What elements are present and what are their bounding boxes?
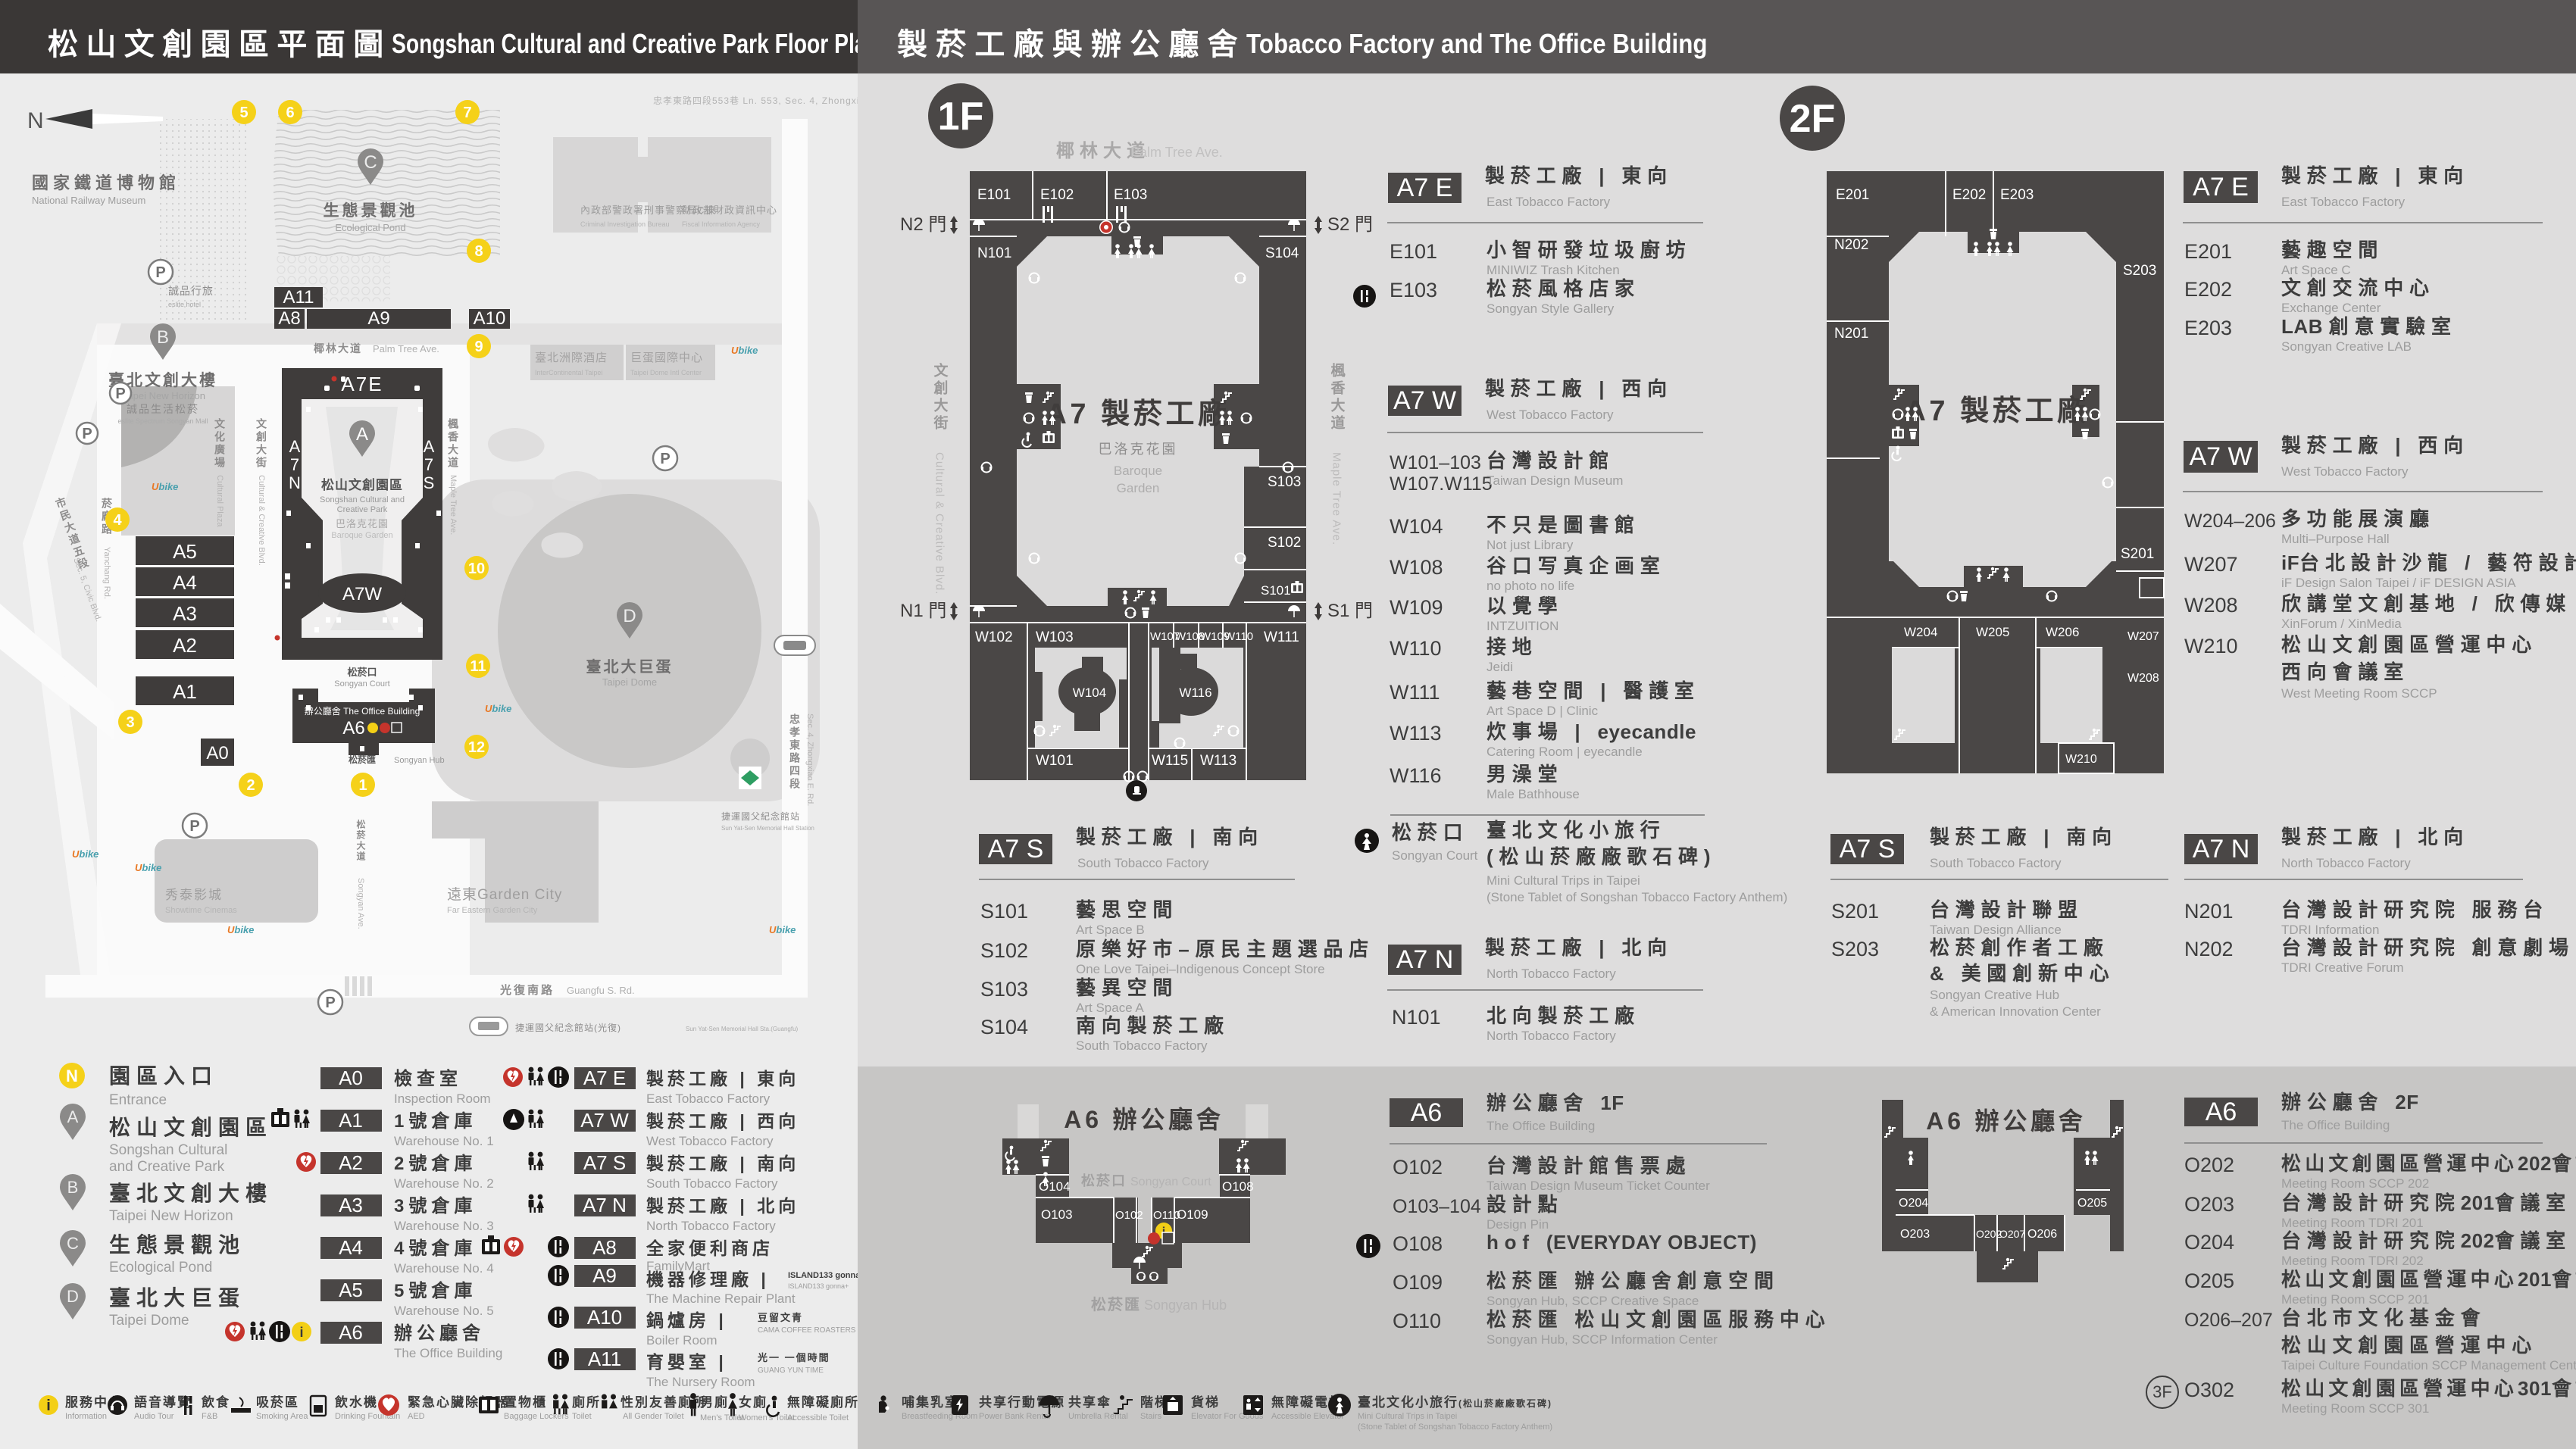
svg-text:Warehouse No. 5: Warehouse No. 5 <box>394 1304 494 1318</box>
svg-text:女廁: 女廁 <box>739 1394 767 1410</box>
svg-text:E103: E103 <box>1114 187 1147 203</box>
svg-text:A: A <box>67 1107 79 1126</box>
svg-text:A10: A10 <box>587 1306 622 1329</box>
svg-text:W210: W210 <box>2065 753 2097 766</box>
svg-text:A6 辦公廳舍: A6 辦公廳舍 <box>1064 1106 1224 1133</box>
svg-text:5: 5 <box>239 105 248 121</box>
svg-text:O205: O205 <box>2077 1197 2107 1210</box>
svg-text:C: C <box>67 1234 79 1253</box>
svg-text:飲食: 飲食 <box>201 1394 230 1410</box>
svg-text:Sun Yat-Sen Memorial Hall Sta.: Sun Yat-Sen Memorial Hall Sta.(Guangfu) <box>686 1026 799 1032</box>
svg-text:eslite Spectrum Songyan Mall: eslite Spectrum Songyan Mall <box>117 417 208 425</box>
svg-text:財政部財政資訊中心: 財政部財政資訊中心 <box>682 205 777 216</box>
svg-text:文化廣場: 文化廣場 <box>214 417 226 470</box>
svg-text:臺北大巨蛋: 臺北大巨蛋 <box>109 1286 245 1310</box>
svg-text:Ubike: Ubike <box>769 924 796 935</box>
svg-text:P: P <box>660 451 670 467</box>
svg-text:A1: A1 <box>339 1109 363 1132</box>
svg-text:A7E: A7E <box>341 373 383 395</box>
svg-text:All Gender Toilet: All Gender Toilet <box>623 1412 684 1421</box>
svg-text:Power Bank Rental: Power Bank Rental <box>979 1412 1050 1421</box>
svg-text:生態景觀池: 生態景觀池 <box>324 201 418 220</box>
svg-text:S1 門: S1 門 <box>1327 601 1373 621</box>
svg-text:E201: E201 <box>1836 187 1869 203</box>
svg-text:7: 7 <box>463 105 471 121</box>
svg-text:Ubike: Ubike <box>485 703 511 714</box>
svg-text:Showtime Cinemas: Showtime Cinemas <box>165 906 237 915</box>
svg-text:The Office Building: The Office Building <box>394 1346 502 1360</box>
svg-text:A: A <box>424 437 435 456</box>
svg-text:Warehouse No. 1: Warehouse No. 1 <box>394 1134 494 1148</box>
svg-text:A4: A4 <box>173 571 197 594</box>
svg-text:A7 E: A7 E <box>583 1066 626 1089</box>
svg-text:A6 辦公廳舍: A6 辦公廳舍 <box>1926 1107 2086 1135</box>
svg-text:W111: W111 <box>1264 629 1299 645</box>
svg-text:W101: W101 <box>1036 753 1074 769</box>
svg-text:W116: W116 <box>1179 685 1211 700</box>
svg-text:Taipei New Horizon: Taipei New Horizon <box>120 390 205 401</box>
svg-text:3號倉庫: 3號倉庫 <box>394 1195 477 1216</box>
svg-text:N1 門: N1 門 <box>900 601 946 621</box>
svg-text:Ubike: Ubike <box>227 924 254 935</box>
svg-text:Taipei New Horizon: Taipei New Horizon <box>109 1208 233 1224</box>
svg-text:Cultural & Creative Blvd.: Cultural & Creative Blvd. <box>257 475 266 566</box>
svg-text:Songyan Hub: Songyan Hub <box>1144 1298 1227 1313</box>
svg-text:N201: N201 <box>1834 326 1868 342</box>
svg-text:光一 一個時間: 光一 一個時間 <box>757 1352 830 1363</box>
svg-text:P: P <box>325 995 335 1011</box>
svg-text:Fiscal Information Agency: Fiscal Information Agency <box>682 220 761 228</box>
svg-text:Umbrella Rental: Umbrella Rental <box>1068 1412 1128 1421</box>
svg-text:D: D <box>623 606 636 626</box>
svg-text:園區入口: 園區入口 <box>109 1064 218 1088</box>
svg-text:Sun Yat-Sen Memorial Hall Stat: Sun Yat-Sen Memorial Hall Station <box>721 825 814 832</box>
svg-text:哺集乳室: 哺集乳室 <box>902 1394 959 1410</box>
svg-text:Palm Tree Ave.: Palm Tree Ave. <box>373 343 439 354</box>
svg-text:E202: E202 <box>1952 187 1986 203</box>
svg-text:N: N <box>27 108 44 133</box>
svg-text:ISLAND133 gonna+: ISLAND133 gonna+ <box>788 1282 849 1290</box>
svg-text:Songyan Court: Songyan Court <box>334 679 389 689</box>
svg-text:O202: O202 <box>1976 1228 2002 1240</box>
svg-text:Smoking Area: Smoking Area <box>256 1412 308 1421</box>
svg-text:4號倉庫: 4號倉庫 <box>394 1238 477 1259</box>
svg-text:E203: E203 <box>2000 187 2034 203</box>
svg-text:i: i <box>299 1325 303 1340</box>
svg-text:Warehouse No. 3: Warehouse No. 3 <box>394 1219 494 1233</box>
svg-text:誠品生活松菸: 誠品生活松菸 <box>127 403 199 415</box>
svg-text:W104: W104 <box>1073 685 1106 700</box>
svg-text:S203: S203 <box>2123 263 2156 279</box>
svg-text:7: 7 <box>290 455 299 474</box>
svg-text:遠東Garden City: 遠東Garden City <box>447 886 562 903</box>
svg-text:Ubike: Ubike <box>152 481 178 492</box>
svg-text:Baroque: Baroque <box>1114 464 1162 478</box>
svg-text:6: 6 <box>286 105 294 121</box>
svg-text:2F: 2F <box>1790 97 1836 141</box>
svg-text:松菸匯: 松菸匯 <box>1091 1295 1141 1313</box>
svg-text:A2: A2 <box>339 1151 363 1174</box>
svg-text:共享傘: 共享傘 <box>1068 1394 1111 1410</box>
svg-text:O108: O108 <box>1222 1179 1254 1194</box>
svg-text:Cultural Plaza: Cultural Plaza <box>215 475 224 527</box>
svg-text:(Stone Tablet of Songshan Toba: (Stone Tablet of Songshan Tobacco Factor… <box>1358 1422 1552 1432</box>
svg-text:N202: N202 <box>1834 237 1868 253</box>
svg-text:South Tobacco Factory: South Tobacco Factory <box>646 1176 778 1191</box>
svg-text:文創大街: 文創大街 <box>932 362 949 433</box>
svg-text:8: 8 <box>474 243 483 260</box>
svg-text:Information: Information <box>65 1412 107 1421</box>
svg-text:臺北文創大樓: 臺北文創大樓 <box>109 1181 273 1205</box>
svg-text:全家便利商店: 全家便利商店 <box>646 1238 774 1258</box>
svg-text:S103: S103 <box>1268 474 1301 490</box>
svg-text:無障礙廁所: 無障礙廁所 <box>787 1394 858 1410</box>
svg-text:1號倉庫: 1號倉庫 <box>394 1110 477 1132</box>
svg-text:A2: A2 <box>173 634 197 657</box>
svg-text:Accessible Toilet: Accessible Toilet <box>787 1413 849 1422</box>
svg-text:W115: W115 <box>1152 753 1188 769</box>
svg-text:F&B: F&B <box>202 1412 217 1421</box>
svg-text:P: P <box>82 426 92 442</box>
svg-text:A7W: A7W <box>342 584 382 604</box>
svg-text:Ubike: Ubike <box>135 862 161 873</box>
svg-text:誠品行旅: 誠品行旅 <box>168 285 214 297</box>
svg-text:Ecological Pond: Ecological Pond <box>109 1260 212 1276</box>
svg-text:A5: A5 <box>339 1279 363 1301</box>
svg-text:A9: A9 <box>367 308 389 329</box>
svg-text:S201: S201 <box>2121 546 2154 562</box>
svg-text:2: 2 <box>246 777 255 794</box>
svg-text:3: 3 <box>126 714 134 731</box>
svg-text:ISLAND133 gonna+: ISLAND133 gonna+ <box>788 1271 858 1280</box>
svg-text:楓香大道: 楓香大道 <box>1329 362 1346 433</box>
svg-text:Maple Tree Ave.: Maple Tree Ave. <box>449 475 458 535</box>
svg-text:N101: N101 <box>977 245 1011 261</box>
svg-text:製菸工廠 | 東向: 製菸工廠 | 東向 <box>646 1069 799 1088</box>
svg-text:O207: O207 <box>1999 1228 2025 1240</box>
svg-text:10: 10 <box>468 561 485 577</box>
svg-text:Maple Tree Ave.: Maple Tree Ave. <box>1330 452 1343 545</box>
svg-text:2號倉庫: 2號倉庫 <box>394 1153 477 1174</box>
svg-text:N: N <box>66 1066 78 1085</box>
svg-text:W204: W204 <box>1904 625 1937 639</box>
svg-text:Warehouse No. 4: Warehouse No. 4 <box>394 1261 494 1276</box>
svg-text:A7 W: A7 W <box>580 1109 629 1132</box>
svg-text:O103: O103 <box>1041 1207 1073 1222</box>
svg-text:檢查室: 檢查室 <box>394 1068 462 1089</box>
svg-text:機器修理廠 |: 機器修理廠 | <box>646 1269 770 1289</box>
svg-text:A6: A6 <box>339 1321 363 1344</box>
svg-text:Warehouse No. 2: Warehouse No. 2 <box>394 1176 494 1191</box>
svg-text:GUANG YUN TIME: GUANG YUN TIME <box>758 1366 824 1375</box>
svg-text:N: N <box>289 473 301 492</box>
svg-text:臺北文化小旅行(松山菸廠廠歌石碑): 臺北文化小旅行(松山菸廠廠歌石碑) <box>1358 1394 1552 1410</box>
svg-text:7: 7 <box>424 455 433 474</box>
svg-text:S2 門: S2 門 <box>1327 214 1373 235</box>
svg-text:and Creative Park: and Creative Park <box>109 1159 225 1175</box>
svg-text:A8: A8 <box>278 308 300 329</box>
svg-text:A11: A11 <box>588 1348 621 1370</box>
svg-text:Ubike: Ubike <box>731 345 758 356</box>
svg-text:W103: W103 <box>1036 629 1074 645</box>
svg-text:S: S <box>424 473 435 492</box>
svg-text:臺北洲際酒店: 臺北洲際酒店 <box>535 351 608 364</box>
svg-text:P: P <box>189 818 199 835</box>
svg-text:The Nursery Room: The Nursery Room <box>646 1375 755 1389</box>
svg-text:秀泰影城: 秀泰影城 <box>165 888 223 902</box>
svg-text:Ubike: Ubike <box>72 848 98 860</box>
svg-text:1: 1 <box>358 777 367 794</box>
svg-text:P: P <box>155 264 165 281</box>
svg-text:Entrance: Entrance <box>109 1092 167 1108</box>
svg-text:Criminal Investigation Bureau: Criminal Investigation Bureau <box>580 220 670 228</box>
svg-text:W208: W208 <box>2127 672 2159 685</box>
svg-text:製菸工廠 | 西向: 製菸工廠 | 西向 <box>646 1111 799 1131</box>
svg-text:育嬰室 |: 育嬰室 | <box>646 1352 727 1372</box>
svg-text:S101: S101 <box>1261 583 1291 598</box>
svg-text:Stairs: Stairs <box>1140 1412 1162 1421</box>
svg-text:West Tobacco Factory: West Tobacco Factory <box>646 1134 774 1148</box>
svg-text:P: P <box>115 386 125 402</box>
svg-text:椰林大道: 椰林大道 <box>314 342 362 354</box>
svg-text:松菸口: 松菸口 <box>1081 1173 1127 1188</box>
svg-text:巨蛋國際中心: 巨蛋國際中心 <box>630 351 703 364</box>
svg-text:吸菸區: 吸菸區 <box>256 1395 299 1410</box>
svg-text:W102: W102 <box>975 629 1013 645</box>
svg-text:National Railway Museum: National Railway Museum <box>32 195 145 206</box>
svg-text:12: 12 <box>468 739 485 756</box>
svg-text:A6: A6 <box>342 718 364 739</box>
svg-text:Baroque Garden: Baroque Garden <box>331 531 392 540</box>
svg-text:A8: A8 <box>592 1236 617 1259</box>
svg-text:A1: A1 <box>173 680 197 703</box>
svg-text:1F: 1F <box>938 95 984 139</box>
svg-text:松菸匯: 松菸匯 <box>349 754 376 765</box>
svg-text:Songyan Ave.: Songyan Ave. <box>356 878 365 929</box>
svg-text:捷運國父紀念館站(光復): 捷運國父紀念館站(光復) <box>515 1022 621 1033</box>
svg-text:語音導覽: 語音導覽 <box>134 1394 192 1410</box>
svg-text:Far Eastern Garden City: Far Eastern Garden City <box>447 906 538 915</box>
svg-text:O206: O206 <box>2027 1228 2057 1241</box>
svg-text:A7 N: A7 N <box>583 1194 627 1216</box>
svg-text:男廁: 男廁 <box>700 1394 729 1410</box>
svg-text:W205: W205 <box>1976 625 2009 639</box>
svg-text:Sec. 4, Zhongxiao E. Rd.: Sec. 4, Zhongxiao E. Rd. <box>805 714 814 806</box>
svg-text:生態景觀池: 生態景觀池 <box>109 1232 245 1257</box>
svg-text:B: B <box>157 327 169 348</box>
svg-text:Toilet: Toilet <box>572 1412 592 1421</box>
svg-text:O109: O109 <box>1177 1207 1208 1222</box>
svg-text:Mini Cultural Trips in Taipei: Mini Cultural Trips in Taipei <box>1358 1412 1457 1421</box>
svg-text:A0: A0 <box>206 743 228 764</box>
svg-text:O102: O102 <box>1115 1209 1143 1222</box>
svg-text:W207: W207 <box>2127 630 2159 643</box>
svg-text:Men's Toilet: Men's Toilet <box>700 1413 744 1422</box>
svg-text:豆留文青: 豆留文青 <box>758 1312 803 1323</box>
svg-text:N2 門: N2 門 <box>900 214 946 235</box>
svg-text:Palm Tree Ave.: Palm Tree Ave. <box>1130 145 1223 160</box>
svg-text:Songshan Cultural and: Songshan Cultural and <box>320 495 405 504</box>
svg-text:5號倉庫: 5號倉庫 <box>394 1280 477 1301</box>
svg-text:貨梯: 貨梯 <box>1191 1394 1220 1410</box>
svg-text:國家鐵道博物館: 國家鐵道博物館 <box>32 173 180 192</box>
svg-text:松菸口: 松菸口 <box>347 667 377 678</box>
svg-text:W113: W113 <box>1200 753 1236 769</box>
svg-text:11: 11 <box>470 658 486 675</box>
svg-text:楓香大道: 楓香大道 <box>447 417 459 470</box>
svg-text:臺北大巨蛋: 臺北大巨蛋 <box>586 658 674 676</box>
svg-text:Yanchang Rd.: Yanchang Rd. <box>102 547 111 599</box>
svg-text:Cultural & Creative Blvd.: Cultural & Creative Blvd. <box>933 452 946 595</box>
svg-text:辦公廳舍: 辦公廳舍 <box>394 1323 485 1344</box>
svg-text:A4: A4 <box>339 1236 363 1259</box>
svg-text:巴洛克花園: 巴洛克花園 <box>336 518 389 529</box>
svg-text:Guangfu S. Rd.: Guangfu S. Rd. <box>567 985 635 996</box>
svg-text:O203: O203 <box>1900 1228 1930 1241</box>
svg-text:E101: E101 <box>977 187 1011 203</box>
svg-text:W110: W110 <box>1224 630 1253 643</box>
svg-text:Audio Tour: Audio Tour <box>134 1412 174 1421</box>
svg-text:A3: A3 <box>173 602 197 625</box>
svg-text:The Machine Repair Plant: The Machine Repair Plant <box>646 1291 796 1306</box>
svg-text:A7 製菸工廠: A7 製菸工廠 <box>1046 398 1230 430</box>
svg-text:光復南路: 光復南路 <box>499 983 555 997</box>
svg-text:A5: A5 <box>173 540 197 563</box>
svg-text:AED: AED <box>408 1412 425 1421</box>
svg-text:A10: A10 <box>474 308 506 329</box>
svg-text:Women's Toilet: Women's Toilet <box>739 1413 795 1422</box>
svg-text:A0: A0 <box>339 1066 363 1089</box>
svg-text:A9: A9 <box>592 1264 617 1287</box>
svg-text:置物櫃: 置物櫃 <box>504 1394 547 1410</box>
svg-text:Songshan Cultural: Songshan Cultural <box>109 1142 227 1158</box>
svg-text:A7 製菸工廠: A7 製菸工廠 <box>1905 395 2089 427</box>
svg-text:4: 4 <box>113 512 122 529</box>
svg-text:A3: A3 <box>339 1194 363 1216</box>
svg-text:Songyan Hub: Songyan Hub <box>394 756 445 765</box>
svg-text:C: C <box>364 152 377 173</box>
svg-text:巴洛克花園: 巴洛克花園 <box>1099 442 1178 457</box>
svg-text:辦公廳舍 The Office Building: 辦公廳舍 The Office Building <box>305 705 420 717</box>
svg-text:CAMA COFFEE ROASTERS: CAMA COFFEE ROASTERS <box>758 1326 856 1335</box>
svg-text:North Tobacco Factory: North Tobacco Factory <box>646 1219 776 1233</box>
svg-text:製菸工廠 | 南向: 製菸工廠 | 南向 <box>646 1154 799 1173</box>
svg-text:忠孝東路四段: 忠孝東路四段 <box>789 714 801 791</box>
svg-text:松菸大道: 松菸大道 <box>355 819 366 862</box>
svg-text:i: i <box>46 1397 51 1414</box>
svg-text:S102: S102 <box>1268 535 1301 551</box>
svg-text:Boiler Room: Boiler Room <box>646 1333 717 1348</box>
svg-text:Creative Park: Creative Park <box>337 505 388 514</box>
svg-text:B: B <box>67 1178 79 1197</box>
svg-text:W206: W206 <box>2046 625 2079 639</box>
svg-text:飲水機: 飲水機 <box>334 1394 378 1410</box>
svg-text:松山文創園區: 松山文創園區 <box>109 1115 273 1139</box>
svg-text:A7 S: A7 S <box>583 1151 626 1174</box>
svg-text:A: A <box>289 437 301 456</box>
svg-text:9: 9 <box>474 339 483 355</box>
svg-text:East Tobacco Factory: East Tobacco Factory <box>646 1091 771 1106</box>
svg-text:A: A <box>356 424 368 445</box>
svg-text:製菸工廠 | 北向: 製菸工廠 | 北向 <box>646 1196 799 1216</box>
svg-text:松山文創園區: 松山文創園區 <box>321 477 403 492</box>
svg-text:O204: O204 <box>1899 1197 1928 1210</box>
svg-text:Songyan Court: Songyan Court <box>1130 1176 1211 1188</box>
svg-text:忠孝東路四段553巷 Ln. 553, Sec. 4, Zh: 忠孝東路四段553巷 Ln. 553, Sec. 4, Zhongxiao E.… <box>653 95 858 106</box>
svg-text:廁所: 廁所 <box>572 1394 601 1410</box>
svg-text:S104: S104 <box>1265 245 1299 261</box>
svg-text:Ecological Pond: Ecological Pond <box>335 222 405 233</box>
svg-text:Garden: Garden <box>1117 481 1160 495</box>
svg-text:鍋爐房 |: 鍋爐房 | <box>646 1310 727 1330</box>
svg-text:Taipei Dome: Taipei Dome <box>602 676 657 688</box>
svg-text:A11: A11 <box>283 287 314 308</box>
svg-text:E102: E102 <box>1040 187 1074 203</box>
svg-text:Taipei Dome Intl Center: Taipei Dome Intl Center <box>630 369 702 376</box>
svg-text:文創大街: 文創大街 <box>255 417 267 470</box>
svg-text:Taipei Dome: Taipei Dome <box>109 1313 189 1329</box>
svg-text:Inspection Room: Inspection Room <box>394 1091 491 1106</box>
svg-text:捷運國父紀念館站: 捷運國父紀念館站 <box>721 810 800 822</box>
svg-text:eslite hotel: eslite hotel <box>168 301 201 308</box>
svg-text:D: D <box>67 1287 79 1306</box>
svg-text:InterContinental Taipei: InterContinental Taipei <box>535 369 602 376</box>
